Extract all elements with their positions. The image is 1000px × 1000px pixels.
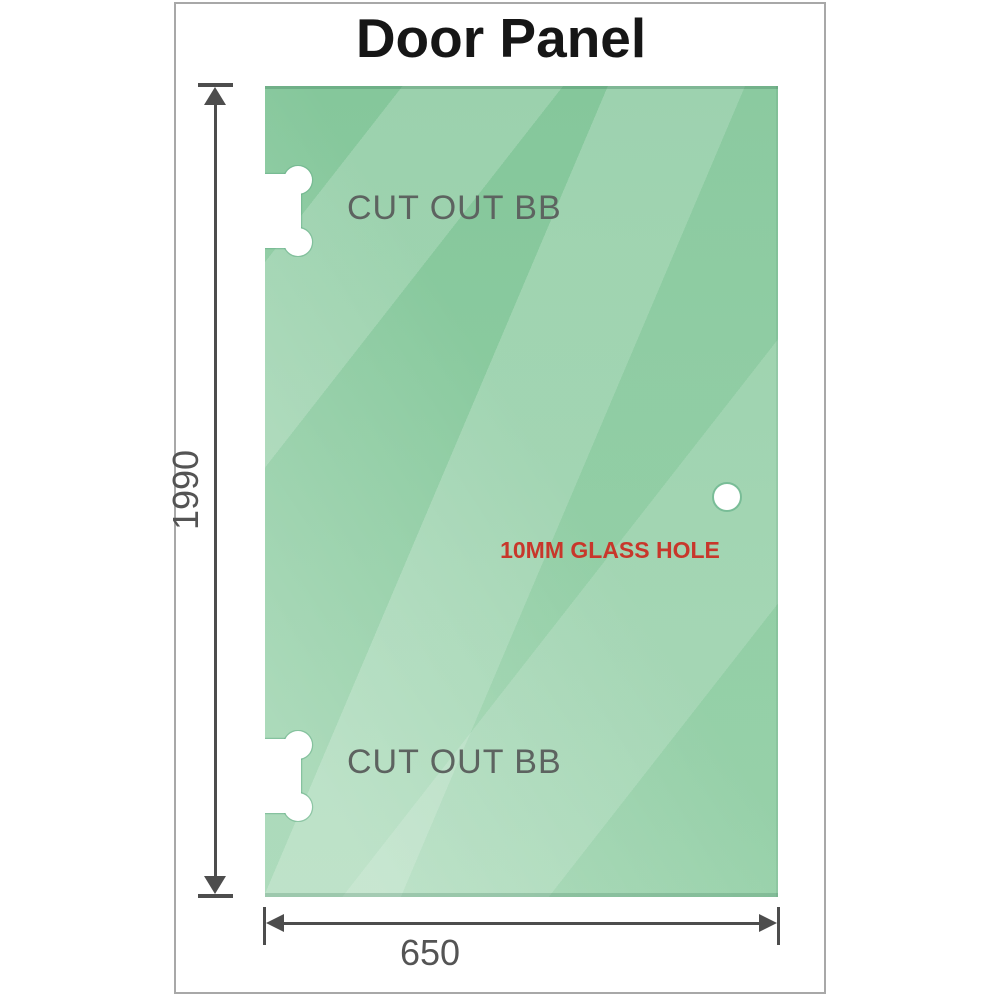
arrow-right-icon bbox=[759, 914, 777, 932]
height-dimension-value: 1990 bbox=[166, 430, 206, 550]
width-dimension-value: 650 bbox=[370, 934, 490, 972]
glass-hole-label: 10MM GLASS HOLE bbox=[450, 537, 770, 563]
cutout-bb-bottom-label: CUT OUT BB bbox=[347, 740, 562, 784]
glass-panel: CUT OUT BB CUT OUT BB 10MM GLASS HOLE bbox=[265, 86, 778, 897]
hinge-cutout-bb-bottom-shape bbox=[265, 730, 315, 822]
arrow-down-icon bbox=[204, 876, 226, 894]
glass-hole-circle bbox=[712, 482, 742, 512]
arrow-left-icon bbox=[266, 914, 284, 932]
height-dimension-line bbox=[214, 97, 217, 884]
cutout-bb-top-label: CUT OUT BB bbox=[347, 186, 562, 230]
width-dimension-tick-right bbox=[777, 907, 780, 945]
door-panel-diagram: Door Panel bbox=[0, 0, 1000, 1000]
height-dimension-cap-bottom bbox=[198, 894, 233, 898]
width-dimension-line bbox=[280, 922, 764, 925]
diagram-title: Door Panel bbox=[175, 8, 827, 68]
hinge-cutout-bb-top-shape bbox=[265, 165, 315, 257]
arrow-up-icon bbox=[204, 87, 226, 105]
